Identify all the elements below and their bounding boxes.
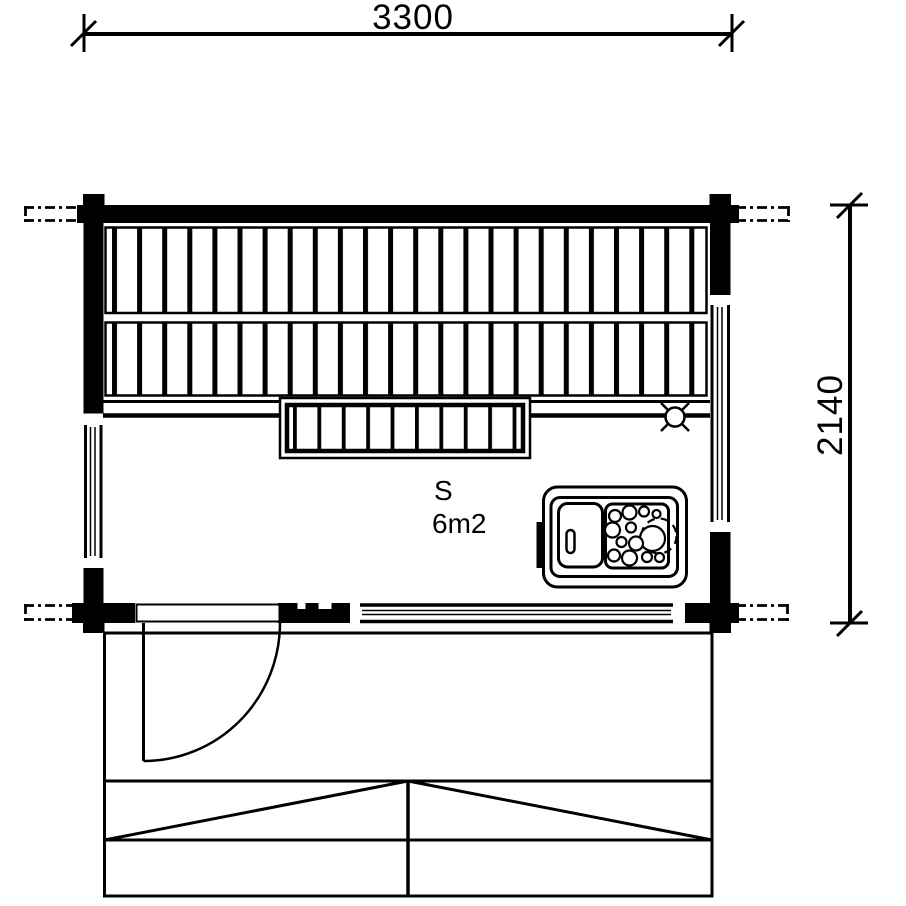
door-swing-arc (144, 623, 281, 761)
deck (105, 633, 713, 896)
wall-notch (298, 603, 306, 609)
heater-stones (605, 504, 677, 568)
floor-plan-canvas: 3300 2140 (0, 0, 906, 906)
right-dimension-label: 2140 (811, 374, 850, 456)
stone (617, 537, 627, 547)
module-line-bottom-right (736, 604, 789, 621)
stone (605, 523, 620, 538)
right-dimension: 2140 (811, 193, 868, 636)
sauna-heater-icon (537, 487, 687, 587)
heater-control-slot (567, 530, 575, 553)
deck-brace-left (105, 781, 409, 840)
benches (103, 228, 710, 459)
stone (623, 506, 637, 520)
stone (608, 550, 620, 562)
light-icon-circle (666, 408, 685, 427)
right-wall-upper (710, 205, 731, 295)
stone (655, 553, 664, 562)
stone (609, 510, 621, 522)
light-point-icon (661, 403, 689, 431)
stone (639, 507, 649, 517)
top-wall (77, 205, 739, 223)
top-dimension-label: 3300 (372, 0, 454, 37)
stone (653, 510, 661, 518)
stone (640, 526, 665, 551)
heater-control-panel (559, 504, 603, 568)
floor-plan-drawing: 3300 2140 (0, 0, 906, 906)
stone (629, 537, 643, 551)
bottom-wall-mid (278, 603, 350, 623)
lower-bench-slats (287, 405, 523, 451)
module-line-top-right (736, 206, 790, 222)
upper-bench (106, 228, 707, 314)
window-left-wall (86, 425, 102, 558)
corner-post-bottom-left (83, 603, 105, 633)
window-bottom-wall (360, 605, 673, 622)
stone (642, 552, 652, 562)
door-threshold (137, 605, 280, 622)
wall-notch (319, 603, 332, 609)
room-label: S 6m2 (432, 475, 486, 539)
corner-post-bottom-right (710, 603, 732, 633)
door-swing-icon (137, 605, 281, 762)
middle-bench (106, 323, 707, 396)
stone (622, 551, 637, 566)
top-dimension: 3300 (71, 0, 744, 52)
window-right-wall (712, 305, 729, 522)
left-wall-upper (84, 205, 104, 414)
module-line-bottom-left (24, 604, 73, 621)
module-line-top-left (24, 206, 79, 222)
lower-bench (280, 398, 530, 458)
room-area: 6m2 (432, 508, 486, 539)
deck-brace-right (408, 781, 712, 840)
stone (626, 523, 636, 533)
room-name: S (434, 475, 453, 506)
